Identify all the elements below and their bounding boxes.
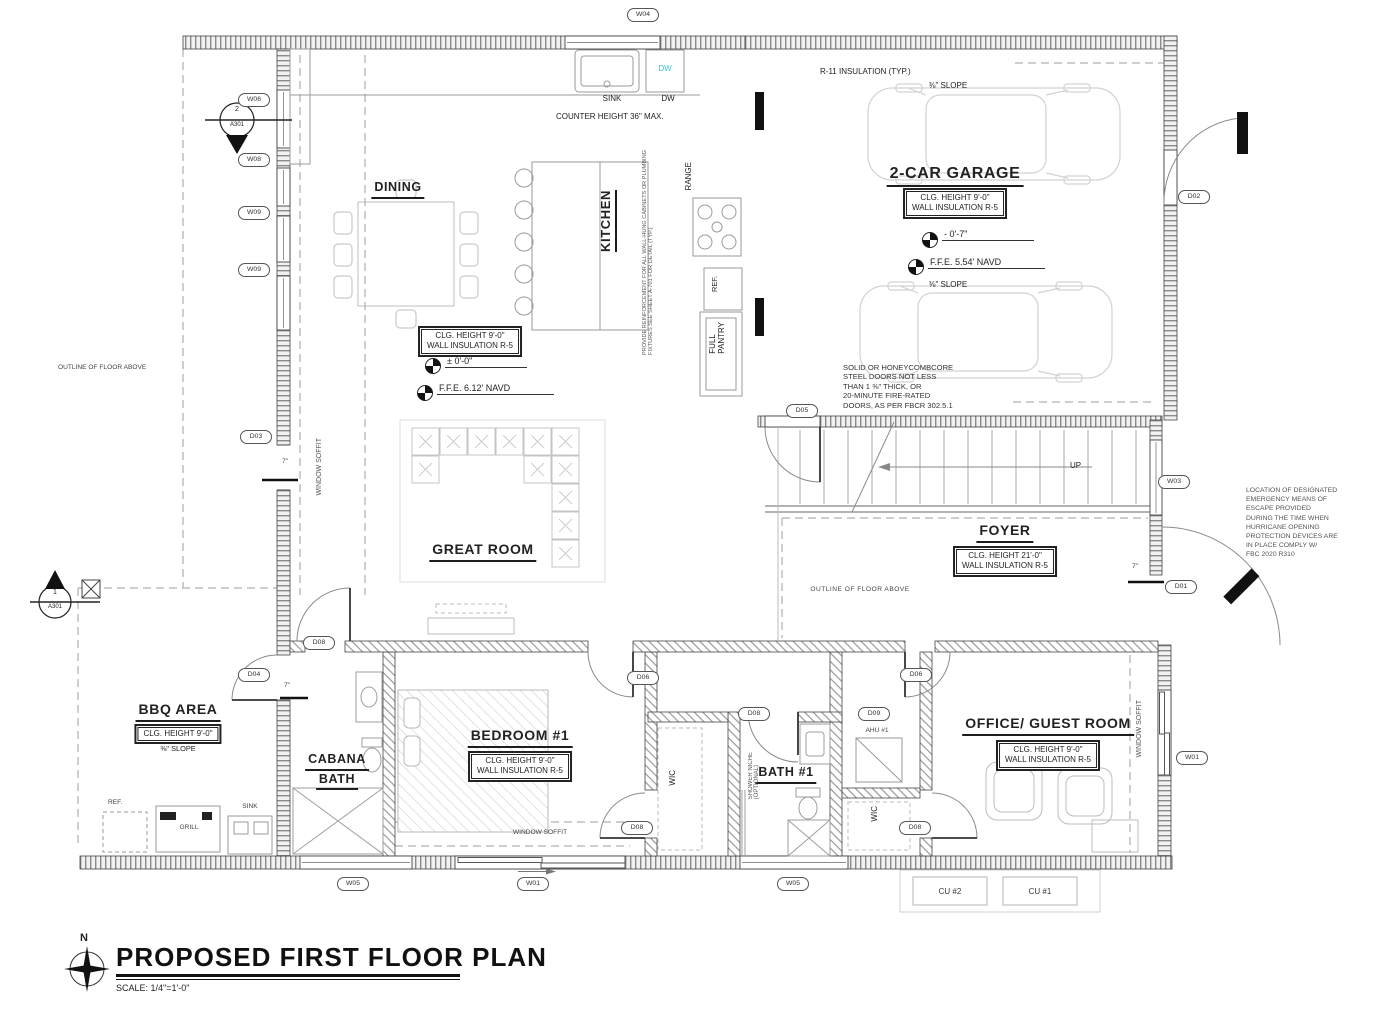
room-label-dining: DINING — [371, 180, 424, 199]
emergency-escape-note: LOCATION OF DESIGNATED EMERGENCY MEANS O… — [1246, 486, 1338, 559]
garage-elev-ffe: F.F.E. 5.54' NAVD — [928, 257, 1045, 269]
jamb-dim-left: 7" — [282, 458, 288, 466]
north-label: N — [80, 932, 88, 946]
garage-slope-bottom: ⅜" SLOPE — [929, 280, 967, 290]
great-room-ins: WALL INSULATION R-5 — [427, 341, 513, 350]
great-room-info-box: CLG. HEIGHT 9'-0" WALL INSULATION R-5 — [418, 326, 522, 357]
room-label-great-room: GREAT ROOM — [429, 541, 536, 562]
outline-floor-above-left: OUTLINE OF FLOOR ABOVE — [58, 364, 146, 372]
garage-slope-top: ⅜" SLOPE — [929, 81, 967, 91]
title-underline-thick — [116, 974, 460, 977]
pantry-label: FULL PANTRY — [708, 322, 726, 354]
cabana-line1: CABANA — [305, 752, 369, 771]
window-tag-w08: W08 — [238, 153, 270, 167]
window-tag-w06: W06 — [238, 93, 270, 107]
door-tag-d06-bedroom: D06 — [627, 671, 659, 685]
counter-height-note: COUNTER HEIGHT 36" MAX. — [556, 112, 664, 122]
stairs-up-label: UP — [1070, 461, 1081, 471]
room-label-kitchen: KITCHEN — [598, 190, 617, 252]
floor-plan-sheet: DINING KITCHEN SINK DW DW COUNTER HEIGHT… — [0, 0, 1392, 1014]
window-soffit-bedroom: WINDOW SOFFIT — [513, 829, 567, 837]
wic-bath-label: WIC — [870, 806, 879, 822]
garage-insulation-note: R-11 INSULATION (TYP.) — [820, 67, 911, 77]
section-marker-left-sheet: A301 — [48, 604, 62, 610]
door-tag-d05: D05 — [786, 404, 818, 418]
section-marker-top-sheet: A301 — [230, 122, 244, 128]
great-room-elev-ffe: F.F.E. 6.12' NAVD — [437, 383, 554, 395]
bbq-slope: ⅜" SLOPE — [160, 744, 196, 753]
room-label-office: OFFICE/ GUEST ROOM — [962, 715, 1134, 736]
cu2-label: CU #2 — [913, 877, 987, 905]
office-info-box: CLG. HEIGHT 9'-0" WALL INSULATION R-5 — [996, 740, 1100, 771]
drawing-title: PROPOSED FIRST FLOOR PLAN — [116, 942, 547, 973]
foyer-info-box: CLG. HEIGHT 21'-0" WALL INSULATION R-5 — [953, 546, 1057, 577]
window-tag-w03: W03 — [1158, 475, 1190, 489]
foyer-clg: CLG. HEIGHT 21'-0" — [968, 551, 1042, 560]
office-ins: WALL INSULATION R-5 — [1005, 755, 1091, 764]
room-label-garage: 2-CAR GARAGE — [887, 164, 1024, 187]
garage-clg: CLG. HEIGHT 9'-0" — [920, 193, 989, 202]
bbq-sink-label: SINK — [242, 803, 257, 811]
window-tag-w01-right: W01 — [1176, 751, 1208, 765]
window-tag-w09a: W09 — [238, 206, 270, 220]
great-room-elev-relative: ± 0'-0" — [445, 356, 527, 368]
wic-bedroom-label: WIC — [668, 770, 677, 786]
bbq-info-box: CLG. HEIGHT 9'-0" — [134, 724, 221, 744]
kitchen-ref-label: REF. — [710, 276, 719, 292]
window-tag-w05-left: W05 — [337, 877, 369, 891]
dishwasher-unit-label: DW — [658, 64, 671, 74]
shower-niche-note: SHOWER NICHE (OPTIONAL) — [748, 752, 760, 799]
room-label-bbq: BBQ AREA — [136, 701, 221, 722]
reinforcement-note: PROVIDE REINFORCEMENT FOR ALL WALL-HUNG … — [642, 150, 654, 355]
window-tag-w09b: W09 — [238, 263, 270, 277]
room-label-foyer: FOYER — [976, 522, 1033, 543]
steel-doors-note: SOLID OR HONEYCOMBCORE STEEL DOORS NOT L… — [843, 363, 953, 410]
bedroom1-ins: WALL INSULATION R-5 — [477, 766, 563, 775]
cu1-label: CU #1 — [1003, 877, 1077, 905]
outline-floor-above-foyer: OUTLINE OF FLOOR ABOVE — [810, 586, 909, 594]
section-marker-top-number: 2 — [235, 106, 239, 113]
ahu-label: AHU #1 — [865, 727, 888, 735]
office-clg: CLG. HEIGHT 9'-0" — [1013, 745, 1082, 754]
foyer-ins: WALL INSULATION R-5 — [962, 561, 1048, 570]
plan-linework — [0, 0, 1392, 1014]
jamb-dim-entry: 7" — [1132, 563, 1138, 571]
room-label-cabana-bath: CABANA BATH — [305, 752, 369, 790]
bbq-grill-label: GRILL — [179, 824, 198, 832]
drawing-scale: SCALE: 1/4"=1'-0" — [116, 983, 547, 993]
room-label-bath1: BATH #1 — [755, 765, 816, 784]
room-label-bedroom1: BEDROOM #1 — [468, 727, 573, 748]
title-underline-thin — [116, 979, 460, 980]
window-soffit-left: WINDOW SOFFIT — [316, 438, 323, 496]
garage-elev-relative: - 0'-7" — [942, 229, 1034, 241]
garage-ins: WALL INSULATION R-5 — [912, 203, 998, 212]
title-block: PROPOSED FIRST FLOOR PLAN SCALE: 1/4"=1'… — [116, 942, 547, 993]
range-label: RANGE — [684, 162, 693, 190]
door-tag-d02: D02 — [1178, 190, 1210, 204]
sink-label: SINK — [603, 94, 622, 104]
door-tag-d08-closet: D08 — [899, 821, 931, 835]
garage-info-box: CLG. HEIGHT 9'-0" WALL INSULATION R-5 — [903, 188, 1007, 219]
section-marker-left-number: 1 — [53, 589, 57, 596]
great-room-clg: CLG. HEIGHT 9'-0" — [435, 331, 504, 340]
bedroom1-clg: CLG. HEIGHT 9'-0" — [485, 756, 554, 765]
bbq-clg: CLG. HEIGHT 9'-0" — [143, 729, 212, 738]
door-tag-d04: D04 — [238, 668, 270, 682]
jamb-dim-cabana: 7" — [284, 682, 290, 690]
door-tag-d08-cabana: D08 — [303, 636, 335, 650]
window-tag-w05-right: W05 — [777, 877, 809, 891]
window-tag-w04: W04 — [627, 8, 659, 22]
door-tag-d06-office: D06 — [900, 668, 932, 682]
window-soffit-office: WINDOW SOFFIT — [1136, 700, 1143, 758]
dishwasher-label: DW — [661, 94, 674, 104]
bedroom1-info-box: CLG. HEIGHT 9'-0" WALL INSULATION R-5 — [468, 751, 572, 782]
door-tag-d01: D01 — [1165, 580, 1197, 594]
bbq-ref-label: REF. — [108, 799, 122, 807]
cabana-line2: BATH — [316, 772, 358, 791]
door-tag-d09-ahu: D09 — [858, 707, 890, 721]
door-tag-d03: D03 — [240, 430, 272, 444]
door-tag-d08-bath: D08 — [738, 707, 770, 721]
door-tag-d08-wic: D08 — [621, 821, 653, 835]
window-tag-w01-bottom: W01 — [517, 877, 549, 891]
